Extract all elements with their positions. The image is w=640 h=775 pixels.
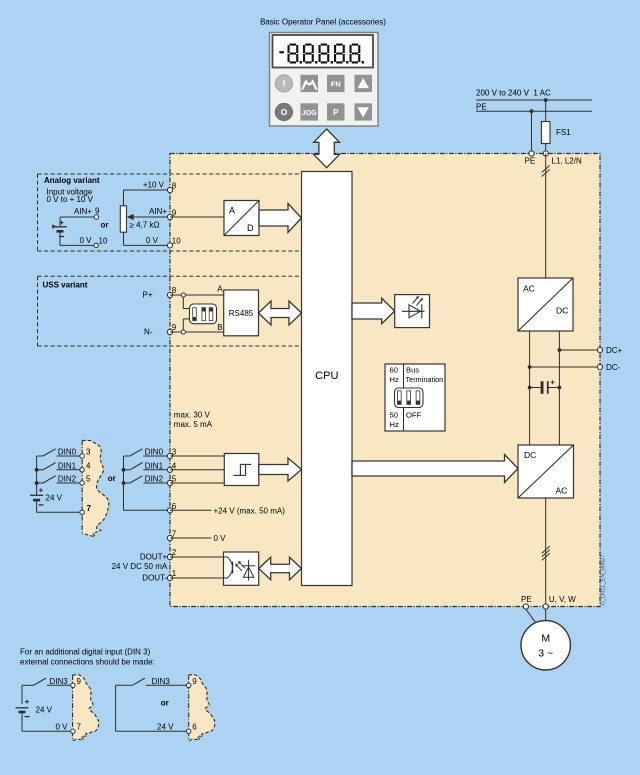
svg-text:2: 2 [172,548,177,557]
svg-text:JOG: JOG [302,110,317,117]
svg-text:+10 V: +10 V [143,180,165,189]
svg-text:DIN3: DIN3 [152,677,171,686]
svg-text:Basic Operator Panel (accessor: Basic Operator Panel (accessories) [260,18,386,27]
svg-text:external connections should be: external connections should be made: [20,658,155,667]
svg-text:I: I [283,79,286,89]
svg-text:FN: FN [331,80,341,89]
svg-text:Termination: Termination [406,375,444,384]
svg-text:4: 4 [86,461,91,470]
svg-text:Hz: Hz [390,420,399,429]
svg-text:Bus: Bus [406,366,419,375]
svg-text:3: 3 [86,448,91,457]
svg-text:or: or [161,699,169,708]
svg-text:7: 7 [172,530,177,539]
svg-text:Analog variant: Analog variant [44,176,100,185]
svg-text:DIN2: DIN2 [58,475,77,484]
svg-text:DIN3: DIN3 [50,677,69,686]
svg-text:0 V: 0 V [146,236,159,245]
svg-text:For an additional digital inpu: For an additional digital input (DIN 3) [20,648,151,657]
svg-text:AC: AC [523,284,535,294]
svg-text:10: 10 [172,236,181,245]
svg-text:DIN1: DIN1 [58,461,77,470]
svg-text:AC: AC [556,486,568,496]
svg-text:7: 7 [87,504,92,513]
svg-text:B: B [217,323,222,332]
svg-text:24 V DC 50 mA: 24 V DC 50 mA [112,562,168,571]
svg-text:DC: DC [556,306,568,316]
svg-text:P: P [333,108,339,117]
svg-text:0 V: 0 V [55,723,68,732]
svg-text:A: A [217,285,223,294]
svg-text:24 V: 24 V [157,723,174,732]
svg-text:max. 30 V: max. 30 V [174,411,211,420]
svg-text:9: 9 [172,208,177,217]
svg-text:O: O [281,107,288,117]
svg-text:or: or [108,474,116,483]
svg-text:L1, L2/N: L1, L2/N [552,157,582,166]
svg-text:M: M [541,633,550,645]
svg-text:7: 7 [77,723,82,732]
svg-text:DIN0: DIN0 [145,448,164,457]
svg-text:DIN1: DIN1 [145,461,164,470]
svg-text:DIN2: DIN2 [145,475,164,484]
svg-text:USS variant: USS variant [43,281,88,290]
svg-text:3: 3 [172,448,177,457]
svg-text:8: 8 [172,181,177,190]
svg-text:0 V: 0 V [214,534,227,543]
svg-text:N-: N- [144,328,153,337]
svg-text:24 V: 24 V [36,706,53,715]
svg-text:DIN0: DIN0 [58,448,77,457]
svg-text:0 V: 0 V [79,236,92,245]
svg-text:P+: P+ [142,291,152,300]
svg-text:3 ~: 3 ~ [538,648,553,660]
svg-text:5: 5 [172,475,177,484]
svg-text:200 V to 240 V 1 AC: 200 V to 240 V 1 AC [476,89,551,98]
svg-text:max. 5 mA: max. 5 mA [174,420,213,429]
svg-text:AIN+: AIN+ [74,207,92,216]
svg-text:PE: PE [521,595,532,604]
svg-text:6: 6 [192,723,197,732]
svg-text:PE: PE [525,157,536,166]
svg-text:9: 9 [95,207,100,216]
svg-text:DOUT+: DOUT+ [140,552,168,561]
svg-text:1: 1 [172,569,177,578]
svg-text:G_D011_EN_00027: G_D011_EN_00027 [601,555,607,606]
svg-text:DC: DC [524,450,536,460]
svg-text:AIN+: AIN+ [149,207,167,216]
svg-text:9: 9 [192,677,197,686]
svg-text:4: 4 [172,461,177,470]
svg-text:9: 9 [77,677,82,686]
svg-text:D: D [247,223,254,233]
svg-text:Hz: Hz [390,375,399,384]
svg-text:10: 10 [99,237,108,246]
svg-text:0 V to + 10 V: 0 V to + 10 V [47,195,94,204]
svg-text:RS485: RS485 [229,309,254,318]
svg-text:OFF: OFF [406,411,422,420]
svg-text:DC-: DC- [606,363,621,372]
svg-text:A: A [229,206,235,216]
svg-text:CPU: CPU [315,370,338,382]
svg-text:50: 50 [390,411,398,420]
svg-text:24 V: 24 V [46,494,63,503]
svg-text:8: 8 [172,286,177,295]
svg-text:+24 V (max. 50 mA): +24 V (max. 50 mA) [214,506,286,515]
svg-text:DC+: DC+ [606,346,623,355]
svg-text:60: 60 [390,366,398,375]
svg-text:≥ 4,7 kΩ: ≥ 4,7 kΩ [130,220,160,229]
svg-text:9: 9 [172,323,177,332]
svg-text:PE: PE [476,102,487,111]
svg-text:FS1: FS1 [556,128,571,137]
svg-text:U, V, W: U, V, W [549,595,576,604]
svg-text:DOUT-: DOUT- [142,573,167,582]
svg-text:5: 5 [86,475,91,484]
svg-text:or: or [101,221,109,230]
svg-text:6: 6 [172,502,177,511]
